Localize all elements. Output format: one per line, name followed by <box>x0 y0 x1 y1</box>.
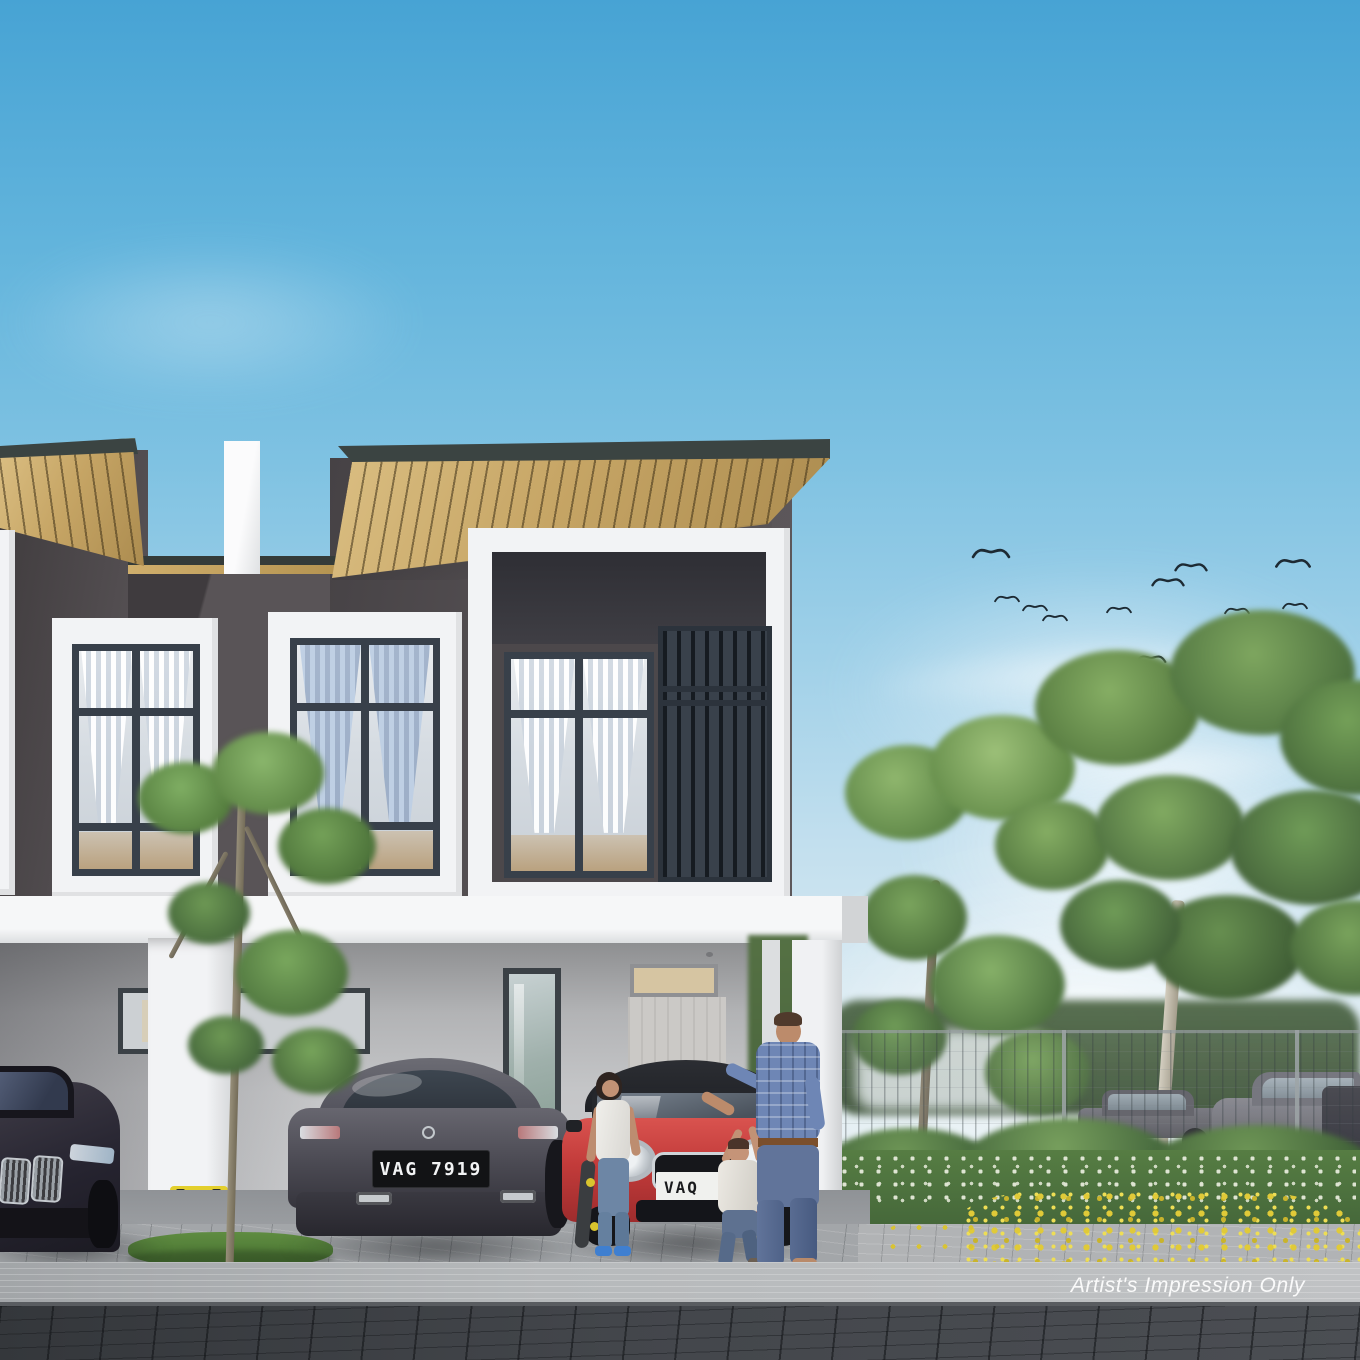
cloud <box>0 240 420 390</box>
exhaust <box>500 1190 536 1203</box>
girl-face <box>602 1080 619 1097</box>
watermark-text: Artist's Impression Only <box>1048 1274 1328 1298</box>
window-frame-sliver <box>0 530 15 895</box>
door-transom <box>630 964 718 997</box>
foliage-blob <box>1095 775 1245 880</box>
toddler-hair <box>728 1138 749 1149</box>
ceiling-downlight <box>706 952 713 957</box>
brand-badge <box>422 1126 435 1139</box>
foliage-blob <box>930 935 1065 1035</box>
bird-icon <box>1151 573 1185 589</box>
curtain <box>514 659 575 833</box>
license-plate: VAG 7919 <box>372 1150 490 1188</box>
curtain <box>369 645 430 829</box>
slab-band <box>0 896 868 943</box>
girl-shoe <box>595 1246 612 1256</box>
taillight <box>300 1126 340 1139</box>
window-left <box>72 644 200 876</box>
bird-icon <box>1174 558 1208 574</box>
foliage-blob <box>168 882 250 944</box>
kidney-grille <box>30 1155 63 1203</box>
license-plate-text: VAG 7919 <box>380 1159 483 1180</box>
road <box>0 1306 1360 1360</box>
girl-leg <box>598 1212 612 1248</box>
toddler-shirt <box>718 1160 760 1214</box>
curtain <box>81 651 132 830</box>
artist-impression-scene: VAG 7919 VAQ <box>0 0 1360 1360</box>
bird-icon <box>994 592 1020 604</box>
bird-icon <box>1042 611 1068 623</box>
foliage-blob <box>212 732 324 814</box>
foliage-blob <box>995 800 1110 890</box>
father-hair <box>774 1012 802 1026</box>
slat-screen-rail <box>658 700 772 706</box>
kidney-grille <box>0 1157 32 1205</box>
foliage-blob <box>1060 880 1180 970</box>
exhaust <box>356 1192 392 1205</box>
slat-screen <box>658 626 772 882</box>
bird-icon <box>1275 554 1311 571</box>
bird-icon <box>1106 603 1132 615</box>
foliage-blob <box>236 930 348 1016</box>
license-plate-text: VAQ <box>664 1178 699 1197</box>
foliage-blob <box>272 1028 360 1094</box>
bird-icon <box>972 543 1011 561</box>
father-leg <box>757 1200 784 1266</box>
curtain <box>300 645 361 829</box>
roof-fin <box>224 441 260 574</box>
wheel <box>88 1180 118 1248</box>
foliage-blob <box>278 808 376 884</box>
slat-screen-rail <box>658 686 772 692</box>
curtain <box>583 659 644 833</box>
girl-top <box>596 1100 630 1162</box>
mirror <box>566 1120 582 1132</box>
girl-shoe <box>614 1246 631 1256</box>
bird-icon <box>1282 599 1308 611</box>
girl-jeans <box>598 1158 629 1216</box>
taillight <box>518 1126 558 1139</box>
slab-end-face <box>842 896 868 943</box>
girl-leg <box>615 1212 629 1248</box>
foliage-blob <box>188 1016 264 1074</box>
window-right <box>504 652 654 878</box>
father-leg <box>790 1198 817 1264</box>
